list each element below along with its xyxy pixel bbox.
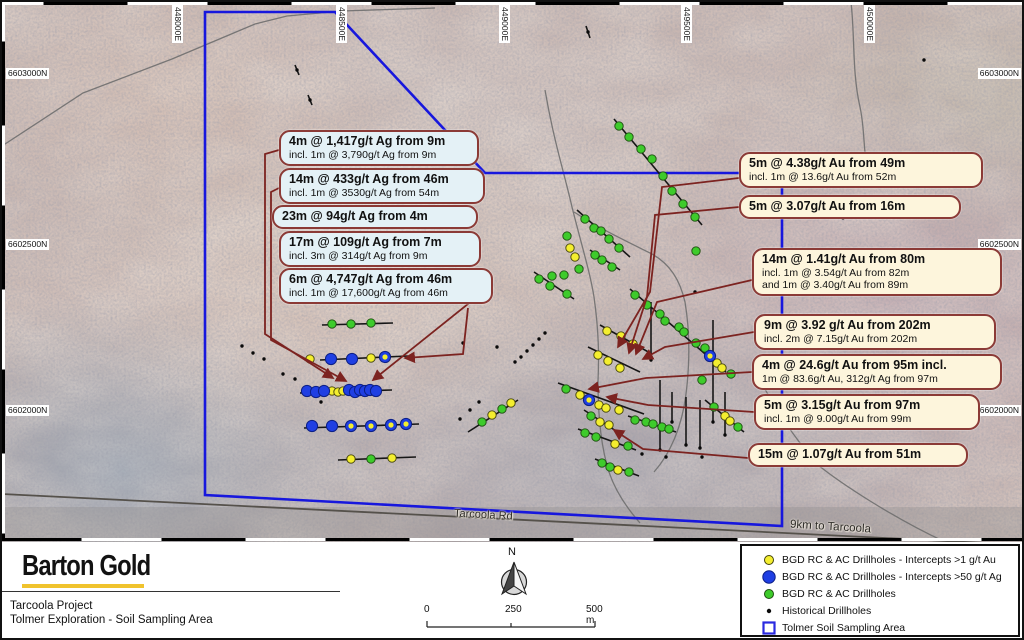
au-intercept-drillhole-dot — [388, 454, 396, 462]
bgd-drillhole-dot — [659, 172, 667, 180]
ag-intercept-drillhole-dot — [325, 353, 336, 364]
legend: BGD RC & AC Drillholes - Intercepts >1 g… — [740, 544, 1020, 637]
intercept-headline: 5m @ 3.07g/t Au from 16m — [749, 199, 951, 214]
historical-drillhole-dot — [525, 349, 528, 352]
blue-square — [764, 622, 775, 633]
historical-drillhole-dot — [698, 446, 701, 449]
bgd-drillhole-dot — [560, 271, 568, 279]
north-label: N — [508, 546, 516, 558]
legend-label: BGD RC & AC Drillholes — [782, 588, 896, 600]
bgd-drillhole-dot — [367, 319, 375, 327]
historical-drillhole-dot — [240, 344, 243, 347]
scale-tick-0: 0 — [424, 604, 430, 615]
intercept-headline: 17m @ 109g/t Ag from 7m — [289, 235, 471, 250]
bgd-drillhole-dot — [597, 227, 605, 235]
grid-label-northing-left: 6602000N — [6, 405, 49, 416]
intercept-headline: 14m @ 1.41g/t Au from 80m — [762, 252, 992, 267]
intercept-detail: incl. 2m @ 7.15g/t Au from 202m — [764, 333, 986, 345]
historical-drillhole-dot — [513, 360, 516, 363]
historical-drillhole-dot — [649, 358, 652, 361]
historical-drillhole-dot — [640, 452, 643, 455]
au-intercept-drillhole-dot — [604, 357, 612, 365]
legend-row: BGD RC & AC Drillholes — [756, 586, 1018, 603]
bgd-drillhole-dot — [608, 263, 616, 271]
bgd-drillhole-dot — [575, 265, 583, 273]
scale-tick-250: 250 — [505, 604, 522, 615]
map-figure: 448000E448500E449000E449500E450000E66030… — [0, 0, 1024, 640]
yellow-dot-icon — [756, 552, 782, 568]
bgd-drillhole-dot — [563, 290, 571, 298]
bgd-drillhole-dot — [328, 320, 336, 328]
au-intercept-drillhole-dot — [615, 406, 623, 414]
bgd-drillhole-dot — [367, 455, 375, 463]
historical-drillhole-dot — [723, 433, 726, 436]
green-dot — [765, 589, 774, 598]
bgd-drillhole-dot — [587, 412, 595, 420]
au-intercept-core-dot — [388, 422, 393, 427]
bgd-drillhole-dot — [598, 256, 606, 264]
ag-intercept-drillhole-dot — [306, 420, 317, 431]
au-intercept-callout: 5m @ 3.07g/t Au from 16m — [739, 195, 961, 219]
bgd-drillhole-dot — [581, 215, 589, 223]
au-intercept-drillhole-dot — [367, 354, 375, 362]
bgd-drillhole-dot — [592, 433, 600, 441]
au-intercept-core-dot — [348, 423, 353, 428]
yellow-dot — [765, 556, 774, 565]
historical-drillhole-dot — [262, 357, 265, 360]
ag-intercept-callout: 17m @ 109g/t Ag from 7mincl. 3m @ 314g/t… — [279, 231, 481, 267]
au-intercept-drillhole-dot — [347, 455, 355, 463]
blue-square-icon — [756, 620, 782, 636]
scale-bar-line — [422, 616, 612, 630]
intercept-detail: incl. 1m @ 13.6g/t Au from 52m — [749, 171, 973, 183]
bgd-drillhole-dot — [668, 187, 676, 195]
historical-drillhole-dot — [281, 372, 284, 375]
project-name: Tarcoola Project — [10, 599, 213, 613]
bgd-drillhole-dot — [347, 320, 355, 328]
blue-dot-icon — [756, 569, 782, 585]
au-intercept-drillhole-dot — [718, 364, 726, 372]
blue-square — [761, 620, 777, 636]
intercept-detail: incl. 1m @ 9.00g/t Au from 99m — [764, 413, 970, 425]
bgd-drillhole-dot — [478, 418, 486, 426]
intercept-headline: 4m @ 1,417g/t Ag from 9m — [289, 134, 469, 149]
bgd-drillhole-dot — [562, 385, 570, 393]
black-dot-icon — [756, 603, 782, 619]
au-intercept-drillhole-dot — [488, 411, 496, 419]
bgd-drillhole-dot — [548, 272, 556, 280]
bgd-drillhole-dot — [563, 232, 571, 240]
bgd-drillhole-dot — [649, 420, 657, 428]
au-intercept-callout: 15m @ 1.07g/t Au from 51m — [748, 443, 968, 467]
bgd-drillhole-dot — [665, 425, 673, 433]
au-intercept-drillhole-dot — [507, 399, 515, 407]
bgd-drillhole-dot — [734, 423, 742, 431]
grid-label-easting: 450000E — [864, 5, 875, 43]
historical-drillhole-dot — [293, 377, 296, 380]
footer-divider — [2, 591, 340, 592]
intercept-detail: incl. 1m @ 3.54g/t Au from 82m — [762, 267, 992, 279]
historical-drillhole-dot — [308, 98, 311, 101]
historical-drillhole-dot — [319, 400, 322, 403]
historical-drillhole-dot — [586, 30, 589, 33]
au-intercept-core-dot — [707, 353, 712, 358]
au-intercept-drillhole-dot — [576, 391, 584, 399]
historical-drillhole-dot — [295, 68, 298, 71]
au-intercept-core-dot — [403, 421, 408, 426]
historical-drillhole-dot — [531, 343, 534, 346]
au-intercept-drillhole-dot — [616, 364, 624, 372]
bgd-drillhole-dot — [615, 244, 623, 252]
logo-underline — [22, 584, 144, 588]
historical-drillhole-dot — [700, 455, 703, 458]
bgd-drillhole-dot — [692, 247, 700, 255]
bgd-drillhole-dot — [615, 122, 623, 130]
bgd-drillhole-dot — [535, 275, 543, 283]
ag-intercept-drillhole-dot — [318, 385, 329, 396]
au-intercept-drillhole-dot — [603, 327, 611, 335]
bgd-drillhole-dot — [661, 317, 669, 325]
yellow-dot — [761, 552, 777, 568]
ag-intercept-drillhole-dot — [326, 420, 337, 431]
historical-drillhole-dot — [477, 400, 480, 403]
bgd-drillhole-dot — [631, 416, 639, 424]
historical-drillhole-dot — [543, 331, 546, 334]
grid-label-easting: 448000E — [172, 5, 183, 43]
intercept-detail: incl. 1m @ 17,600g/t Ag from 46m — [289, 287, 483, 299]
au-intercept-drillhole-dot — [571, 253, 579, 261]
grid-label-easting: 448500E — [336, 5, 347, 43]
au-intercept-core-dot — [586, 397, 591, 402]
intercept-headline: 5m @ 4.38g/t Au from 49m — [749, 156, 973, 171]
grid-label-northing-right: 6602000N — [978, 405, 1021, 416]
legend-row: Historical Drillholes — [756, 602, 1018, 619]
au-intercept-callout: 14m @ 1.41g/t Au from 80mincl. 1m @ 3.54… — [752, 248, 1002, 296]
historical-drillhole-dot — [468, 408, 471, 411]
bgd-drillhole-dot — [598, 459, 606, 467]
bgd-drillhole-dot — [631, 291, 639, 299]
au-intercept-callout: 5m @ 4.38g/t Au from 49mincl. 1m @ 13.6g… — [739, 152, 983, 188]
au-intercept-drillhole-dot — [602, 404, 610, 412]
bgd-drillhole-dot — [698, 376, 706, 384]
map-footer: Barton Gold Tarcoola Project Tolmer Expl… — [2, 542, 1024, 640]
au-intercept-callout: 5m @ 3.15g/t Au from 97mincl. 1m @ 9.00g… — [754, 394, 980, 430]
intercept-headline: 4m @ 24.6g/t Au from 95m incl. — [762, 358, 992, 373]
intercept-detail: 1m @ 83.6g/t Au, 312g/t Ag from 97m — [762, 373, 992, 385]
historical-drillhole-dot — [670, 420, 673, 423]
green-dot-icon — [756, 586, 782, 602]
legend-row: Tolmer Soil Sampling Area — [756, 619, 1018, 636]
blue-dot — [763, 571, 775, 583]
historical-drillhole-dot — [684, 443, 687, 446]
project-subtitle: Tolmer Exploration - Soil Sampling Area — [10, 613, 213, 627]
bgd-drillhole-dot — [624, 442, 632, 450]
grid-label-northing-right: 6603000N — [978, 68, 1021, 79]
legend-row: BGD RC & AC Drillholes - Intercepts >1 g… — [756, 552, 1018, 569]
au-intercept-drillhole-dot — [614, 466, 622, 474]
historical-drillhole-dot — [251, 351, 254, 354]
au-intercept-callout: 4m @ 24.6g/t Au from 95m incl.1m @ 83.6g… — [752, 354, 1002, 390]
au-intercept-drillhole-dot — [726, 417, 734, 425]
bgd-drillhole-dot — [691, 213, 699, 221]
bgd-drillhole-dot — [498, 405, 506, 413]
au-intercept-drillhole-dot — [605, 421, 613, 429]
historical-drillhole-dot — [495, 345, 498, 348]
historical-drillhole-dot — [519, 355, 522, 358]
au-intercept-drillhole-dot — [596, 418, 604, 426]
ag-intercept-callout: 23m @ 94g/t Ag from 4m — [272, 205, 478, 229]
au-intercept-callout: 9m @ 3.92 g/t Au from 202mincl. 2m @ 7.1… — [754, 314, 996, 350]
legend-label: Historical Drillholes — [782, 605, 871, 617]
bgd-drillhole-dot — [680, 328, 688, 336]
ag-intercept-callout: 4m @ 1,417g/t Ag from 9mincl. 1m @ 3,790… — [279, 130, 479, 166]
intercept-detail: incl. 1m @ 3530g/t Ag from 54m — [289, 187, 475, 199]
intercept-detail: and 1m @ 3.40g/t Au from 89m — [762, 279, 992, 291]
barton-gold-logo: Barton Gold — [22, 550, 179, 588]
grid-label-northing-left: 6603000N — [6, 68, 49, 79]
historical-drillhole-dot — [711, 420, 714, 423]
bgd-drillhole-dot — [625, 133, 633, 141]
north-arrow: N — [494, 548, 534, 604]
grid-label-easting: 449000E — [499, 5, 510, 43]
au-intercept-drillhole-dot — [611, 440, 619, 448]
grid-label-easting: 449500E — [681, 5, 692, 43]
bgd-drillhole-dot — [648, 155, 656, 163]
historical-drillhole-dot — [537, 337, 540, 340]
legend-label: Tolmer Soil Sampling Area — [782, 622, 905, 634]
map: 448000E448500E449000E449500E450000E66030… — [2, 2, 1024, 542]
blue-dot — [761, 569, 777, 585]
scale-bar: 0 250 500 m — [422, 604, 612, 634]
intercept-headline: 23m @ 94g/t Ag from 4m — [282, 209, 468, 224]
intercept-headline: 5m @ 3.15g/t Au from 97m — [764, 398, 970, 413]
intercept-detail: incl. 3m @ 314g/t Ag from 9m — [289, 250, 471, 262]
bgd-drillhole-dot — [637, 145, 645, 153]
green-dot — [761, 586, 777, 602]
ag-intercept-callout: 14m @ 433g/t Ag from 46mincl. 1m @ 3530g… — [279, 168, 485, 204]
au-intercept-drillhole-dot — [566, 244, 574, 252]
intercept-headline: 9m @ 3.92 g/t Au from 202m — [764, 318, 986, 333]
bgd-drillhole-dot — [679, 200, 687, 208]
ag-intercept-callout: 6m @ 4,747g/t Ag from 46mincl. 1m @ 17,6… — [279, 268, 493, 304]
intercept-detail: incl. 1m @ 3,790g/t Ag from 9m — [289, 149, 469, 161]
historical-drillhole-dot — [922, 58, 925, 61]
au-intercept-core-dot — [368, 423, 373, 428]
project-caption: Tarcoola Project Tolmer Exploration - So… — [10, 599, 213, 627]
historical-drillhole-dot — [458, 417, 461, 420]
ag-intercept-drillhole-dot — [346, 353, 357, 364]
legend-label: BGD RC & AC Drillholes - Intercepts >1 g… — [782, 554, 996, 566]
historical-drillhole-dot — [664, 455, 667, 458]
black-dot — [767, 609, 771, 613]
logo-text: Barton Gold — [22, 550, 150, 583]
bgd-drillhole-dot — [606, 463, 614, 471]
legend-row: BGD RC & AC Drillholes - Intercepts >50 … — [756, 569, 1018, 586]
intercept-headline: 6m @ 4,747g/t Ag from 46m — [289, 272, 483, 287]
bgd-drillhole-dot — [546, 282, 554, 290]
au-intercept-drillhole-dot — [594, 351, 602, 359]
bgd-drillhole-dot — [581, 429, 589, 437]
grid-label-northing-left: 6602500N — [6, 239, 49, 250]
intercept-headline: 14m @ 433g/t Ag from 46m — [289, 172, 475, 187]
legend-label: BGD RC & AC Drillholes - Intercepts >50 … — [782, 571, 1002, 583]
bgd-drillhole-dot — [625, 468, 633, 476]
black-dot — [761, 603, 777, 619]
au-intercept-core-dot — [382, 354, 387, 359]
intercept-headline: 15m @ 1.07g/t Au from 51m — [758, 447, 958, 462]
bgd-drillhole-dot — [605, 235, 613, 243]
ag-intercept-drillhole-dot — [370, 385, 381, 396]
